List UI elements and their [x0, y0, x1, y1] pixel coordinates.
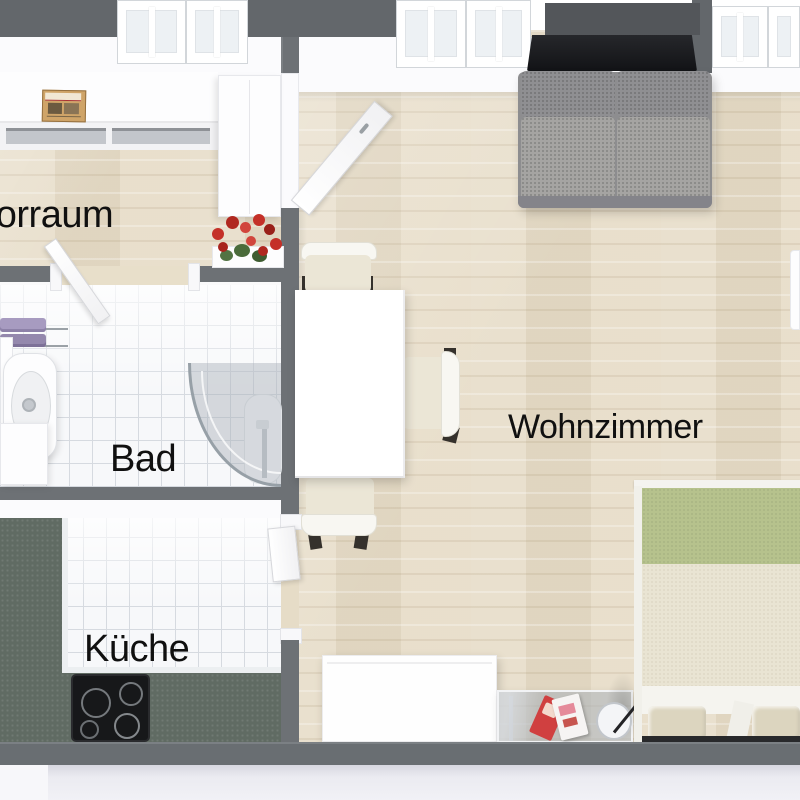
window — [396, 0, 466, 68]
sofa-seat-cushion — [617, 117, 710, 201]
living-sideboard — [322, 655, 497, 742]
burner — [114, 713, 140, 739]
bed-blanket-green — [642, 488, 800, 564]
sofa-front-edge — [518, 196, 712, 208]
window-mullion — [737, 13, 743, 61]
newspaper-photo — [48, 103, 62, 114]
washing-machine — [0, 423, 48, 485]
dining-chair-right — [402, 346, 460, 442]
hall-sideboard — [0, 72, 218, 150]
flower — [258, 246, 268, 256]
door-handle — [359, 123, 370, 135]
lamp-base — [596, 702, 632, 740]
flower — [212, 228, 224, 240]
wall-vertical-doorframe — [281, 73, 299, 210]
stove-cooktop — [73, 676, 148, 740]
leaf — [234, 244, 250, 257]
room-label-kueche: Küche — [84, 628, 189, 671]
hall-sideboard-shelf-slot — [6, 128, 106, 144]
window-mullion — [214, 7, 220, 57]
newspaper — [42, 90, 87, 123]
room-label-bad: Bad — [110, 438, 176, 481]
window-glass — [777, 16, 791, 57]
bad-door-jamb-right — [188, 263, 200, 291]
wall-shelf-right-edge — [790, 250, 800, 330]
sofa-seat-cushion — [521, 117, 615, 201]
window — [186, 0, 248, 64]
sofa-back-cushion — [617, 71, 710, 117]
wall-bad-top-left — [0, 266, 55, 285]
window — [768, 6, 800, 68]
burner — [81, 688, 111, 718]
chair-seat — [305, 255, 371, 293]
window-mullion — [149, 7, 155, 57]
wall-vertical-bottom — [281, 640, 299, 742]
newspaper-text-line — [47, 116, 81, 118]
magazine-page-art — [562, 717, 578, 728]
bed-duvet — [642, 564, 800, 686]
towel — [0, 318, 46, 332]
flower — [218, 242, 228, 252]
newspaper-masthead — [45, 93, 81, 102]
shower-head — [256, 420, 269, 429]
top-wall-segment-1 — [0, 0, 117, 37]
floorplan-canvas: Vorraum Bad Küche Wohnzimmer — [0, 0, 800, 800]
newspaper-photo — [64, 103, 79, 114]
wardrobe-door-line — [249, 80, 250, 214]
chair-back — [441, 351, 460, 437]
room-label-vorraum: Vorraum — [0, 194, 113, 237]
flower — [264, 224, 275, 235]
pillow — [752, 706, 800, 740]
window-mullion — [428, 7, 434, 61]
bottom-wall — [0, 742, 800, 765]
shower-column — [262, 428, 267, 478]
flower — [246, 236, 256, 246]
window-mullion — [496, 7, 502, 61]
wall-bad-kueche — [0, 487, 281, 500]
flower-pot — [206, 206, 286, 266]
hall-sideboard-shelf-slot — [112, 128, 210, 144]
magazine-page-art — [558, 703, 576, 717]
window — [466, 0, 531, 68]
sofa-back-cushion — [521, 71, 615, 117]
flower — [226, 216, 239, 229]
dining-chair-bottom — [300, 478, 376, 550]
pillow — [648, 706, 706, 740]
chair-back — [301, 514, 377, 536]
exterior-ground — [0, 765, 800, 800]
flower — [253, 214, 265, 226]
burner — [80, 720, 99, 739]
window — [117, 0, 186, 64]
wall-vertical-top — [281, 37, 299, 75]
tv-screen — [527, 35, 697, 71]
flower — [240, 222, 251, 233]
exterior-terrace — [0, 765, 48, 800]
sideboard-top-line — [327, 662, 492, 664]
flower — [270, 238, 282, 250]
bed-side-rail — [634, 486, 642, 742]
room-label-wohnzimmer: Wohnzimmer — [508, 408, 703, 447]
bed-head-edge — [634, 480, 800, 488]
tv-board — [545, 3, 700, 35]
window — [712, 6, 768, 68]
burner — [119, 682, 143, 706]
dining-table — [295, 290, 405, 478]
dining-chair-top — [300, 242, 376, 294]
kitchen-counter-edge-v — [62, 518, 68, 673]
double-bed — [632, 480, 800, 742]
kueche-wall-face — [0, 498, 281, 520]
wardrobe — [218, 75, 281, 217]
kitchen-door-panel — [267, 526, 300, 583]
sofa — [518, 70, 712, 210]
sink-drain — [22, 398, 36, 412]
top-wall-segment-2 — [248, 0, 396, 37]
wall-bad-top-right — [193, 266, 281, 285]
